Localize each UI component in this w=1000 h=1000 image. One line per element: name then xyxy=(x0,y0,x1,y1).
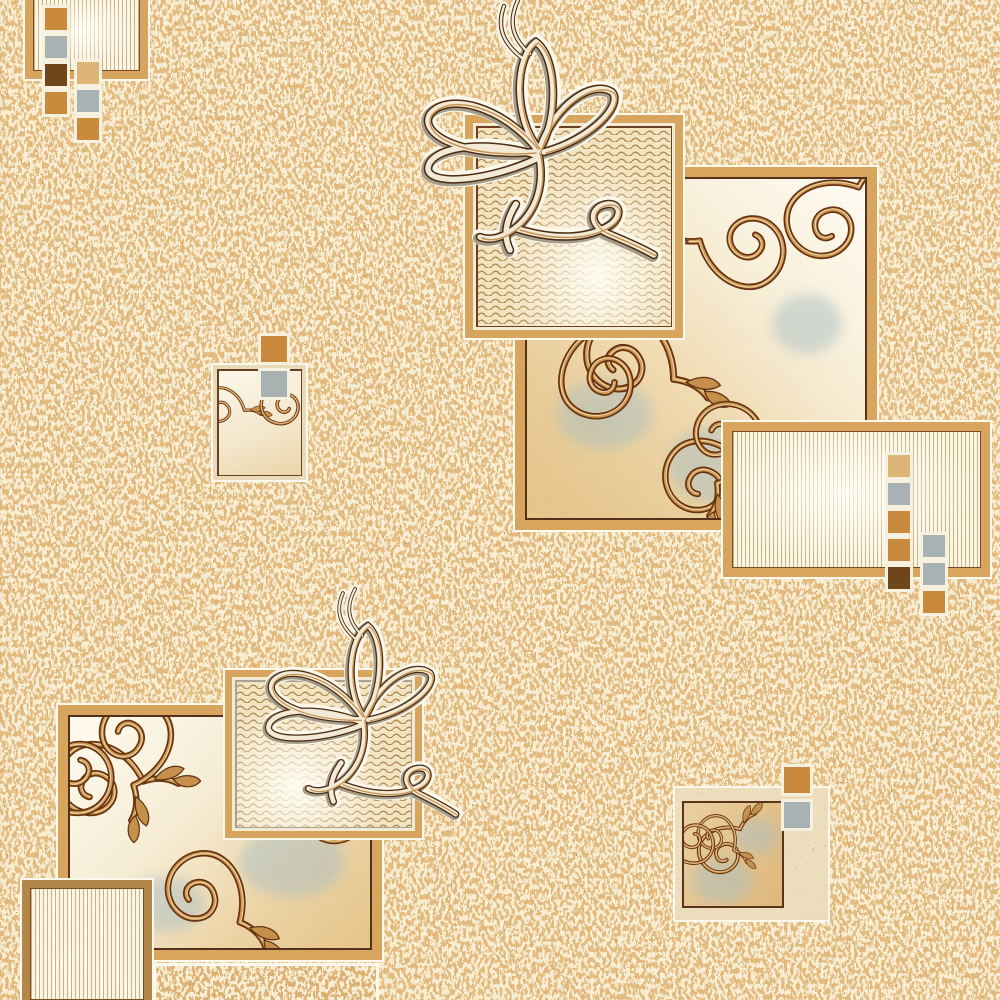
top-ribbon-flourish xyxy=(418,0,660,262)
swatch-orange xyxy=(74,115,102,143)
swatch-orange xyxy=(885,508,913,536)
swatch-blueGray xyxy=(885,480,913,508)
swatch-tan xyxy=(74,59,102,87)
bottom-right-swatches xyxy=(781,764,813,834)
bottom-ribbon-flourish xyxy=(254,581,474,819)
swatch-blueGray xyxy=(920,532,948,560)
swatch-orange xyxy=(885,536,913,564)
swatch-blueGray xyxy=(42,33,70,61)
right-striped-rect xyxy=(721,420,992,579)
right-swatch-column-b xyxy=(920,532,948,616)
swatch-darkBrown xyxy=(42,61,70,89)
top-left-swatch-column-a xyxy=(42,5,70,117)
swatch-orange xyxy=(42,89,70,117)
bottom-left-striped-rect xyxy=(20,878,154,1000)
swatch-tan xyxy=(885,452,913,480)
mid-left-swatches xyxy=(258,333,290,403)
swatch-blueGray xyxy=(74,87,102,115)
swatch-blueGray xyxy=(781,799,813,831)
swatch-orange xyxy=(42,5,70,33)
swatch-blueGray xyxy=(920,560,948,588)
swatch-orange xyxy=(920,588,948,616)
swatch-orange xyxy=(781,764,813,796)
swatch-blueGray xyxy=(258,368,290,400)
swatch-darkBrown xyxy=(885,564,913,592)
bottom-partial-panel xyxy=(153,963,379,1000)
top-left-swatch-column-b xyxy=(74,59,102,143)
scroll-inset xyxy=(682,801,784,908)
swatch-orange xyxy=(258,333,290,365)
carpet-pattern xyxy=(0,0,1000,1000)
right-swatch-column-a xyxy=(885,452,913,592)
